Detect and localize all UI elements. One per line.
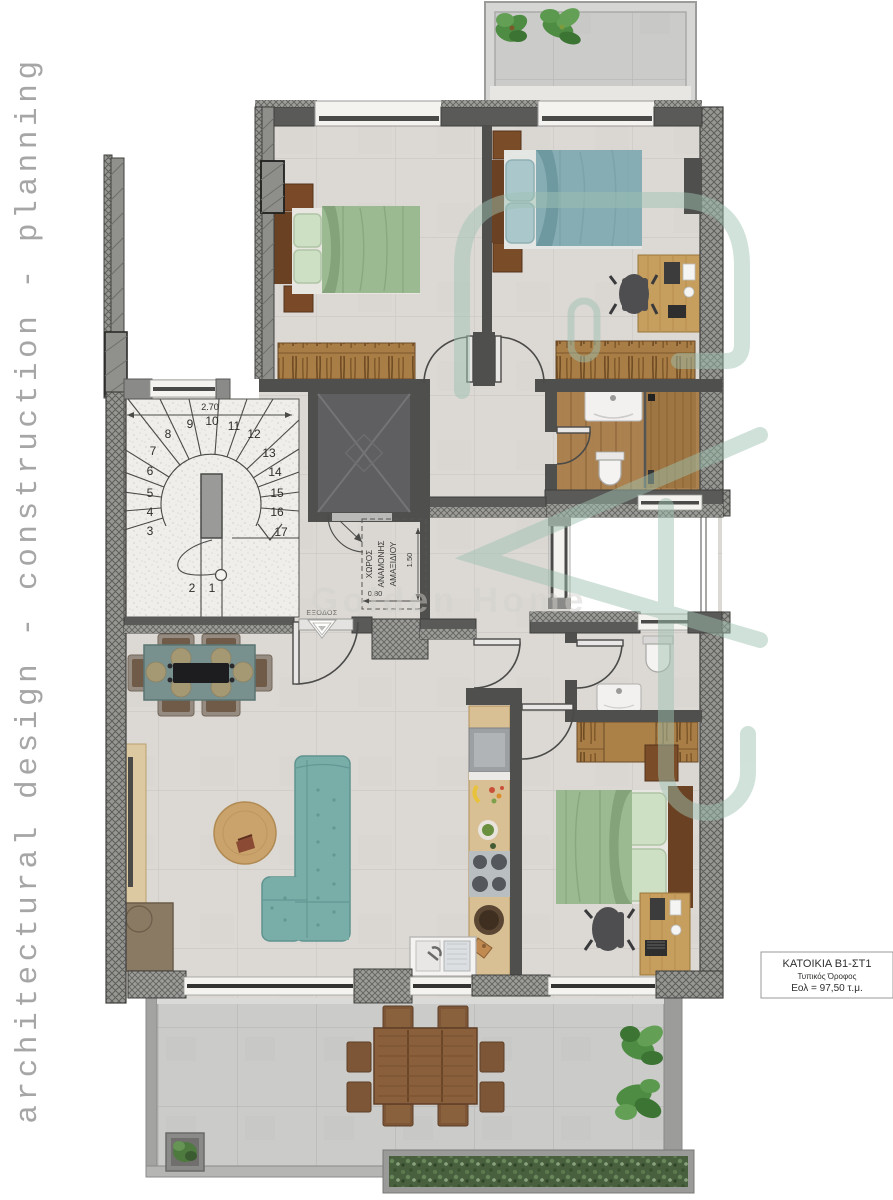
svg-text:ΧΩΡΟΣ: ΧΩΡΟΣ xyxy=(365,550,374,578)
svg-text:ΑΜΑΞΙΔΙΟΥ: ΑΜΑΞΙΔΙΟΥ xyxy=(389,541,398,586)
svg-text:Εολ = 97,50 τ.μ.: Εολ = 97,50 τ.μ. xyxy=(791,983,863,994)
svg-text:11: 11 xyxy=(228,419,241,433)
svg-text:7: 7 xyxy=(150,444,157,458)
svg-text:Golden Home: Golden Home xyxy=(311,581,588,620)
svg-text:13: 13 xyxy=(262,446,276,460)
svg-text:1.50: 1.50 xyxy=(405,553,414,568)
svg-text:6: 6 xyxy=(147,464,154,478)
svg-text:12: 12 xyxy=(247,427,261,441)
svg-text:15: 15 xyxy=(270,486,284,500)
svg-text:1: 1 xyxy=(209,581,216,595)
svg-text:8: 8 xyxy=(165,427,172,441)
svg-text:14: 14 xyxy=(268,465,282,479)
svg-text:architectural design - constru: architectural design - construction - pl… xyxy=(11,56,46,1123)
svg-text:9: 9 xyxy=(187,417,194,431)
svg-text:3: 3 xyxy=(147,524,154,538)
svg-text:ΚΑΤΟΙΚΙΑ Β1-ΣΤ1: ΚΑΤΟΙΚΙΑ Β1-ΣΤ1 xyxy=(783,958,872,970)
svg-text:5: 5 xyxy=(147,486,154,500)
svg-text:10: 10 xyxy=(205,414,219,428)
svg-text:Τυπικός Όροφος: Τυπικός Όροφος xyxy=(798,972,857,981)
svg-text:2: 2 xyxy=(189,581,196,595)
svg-text:16: 16 xyxy=(270,505,284,519)
svg-text:2.70: 2.70 xyxy=(201,402,219,412)
svg-text:4: 4 xyxy=(147,505,154,519)
